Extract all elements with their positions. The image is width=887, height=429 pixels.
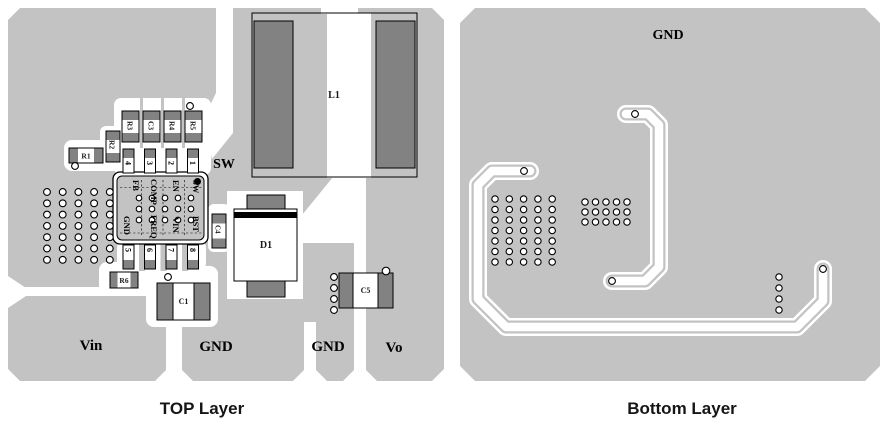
l1-pad-right [376, 21, 415, 168]
r1-label: R1 [81, 152, 90, 161]
capacitor-c4: C4 [212, 214, 226, 248]
pin-name-sw: SW [191, 180, 201, 194]
d1-cathode-band [234, 212, 297, 218]
r3-label: R3 [126, 121, 135, 130]
pin-name-gnd: GND [122, 216, 132, 235]
pad-number: 6 [145, 248, 154, 252]
pin-name-fb: FB [131, 180, 141, 191]
top-layer-board: L1 FB COMP EN SW GND FREQ VIN BST [8, 8, 444, 382]
c4-label: C4 [214, 225, 222, 234]
net-label-gnd-right: GND [311, 339, 345, 355]
c3-label: C3 [147, 121, 156, 130]
pcb-layout-figure: L1 FB COMP EN SW GND FREQ VIN BST [0, 0, 887, 429]
pin-name-bst: BST [191, 216, 201, 232]
pad-number: 2 [167, 161, 176, 165]
resistor-r4: R4 [164, 111, 181, 142]
bottom-layer-caption: Bottom Layer [627, 399, 737, 418]
pin-name-freq: FREQ [149, 215, 159, 239]
net-label-gnd-bottom: GND [652, 28, 683, 43]
pin-name-vin: VIN [171, 217, 181, 233]
resistor-r1: R1 [69, 148, 103, 163]
capacitor-c3: C3 [143, 111, 160, 142]
net-label-sw: SW [213, 157, 235, 172]
net-label-vo: Vo [386, 340, 403, 356]
resistor-r5: R5 [185, 111, 202, 142]
r5-label: R5 [189, 121, 198, 130]
l1-label: L1 [328, 90, 340, 101]
resistor-r2: R2 [106, 131, 120, 162]
pad-number: 5 [124, 248, 133, 252]
top-layer-caption: TOP Layer [160, 399, 245, 418]
resistor-r3: R3 [122, 111, 139, 142]
pad-number: 7 [167, 248, 176, 252]
net-label-vin: Vin [80, 338, 103, 354]
d1-label: D1 [260, 240, 272, 251]
capacitor-c1: C1 [157, 283, 210, 320]
pad-number: 1 [188, 161, 197, 165]
c1-label: C1 [179, 297, 189, 306]
net-label-gnd-mid: GND [199, 339, 233, 355]
r4-label: R4 [168, 121, 177, 130]
bottom-layer-board: GND [460, 8, 880, 381]
resistor-r6: R6 [110, 272, 138, 288]
pad-number: 8 [188, 248, 197, 252]
pin-name-en: EN [171, 180, 181, 193]
capacitor-c5: C5 [339, 273, 393, 308]
r6-label: R6 [119, 276, 128, 285]
pad-number: 3 [145, 161, 154, 165]
r2-label: R2 [108, 140, 117, 149]
d1-anode-tab [247, 281, 285, 297]
pin-name-comp: COMP [149, 179, 159, 205]
l1-pad-left [254, 21, 293, 168]
pad-number: 4 [124, 161, 133, 165]
c5-label: C5 [361, 286, 371, 295]
